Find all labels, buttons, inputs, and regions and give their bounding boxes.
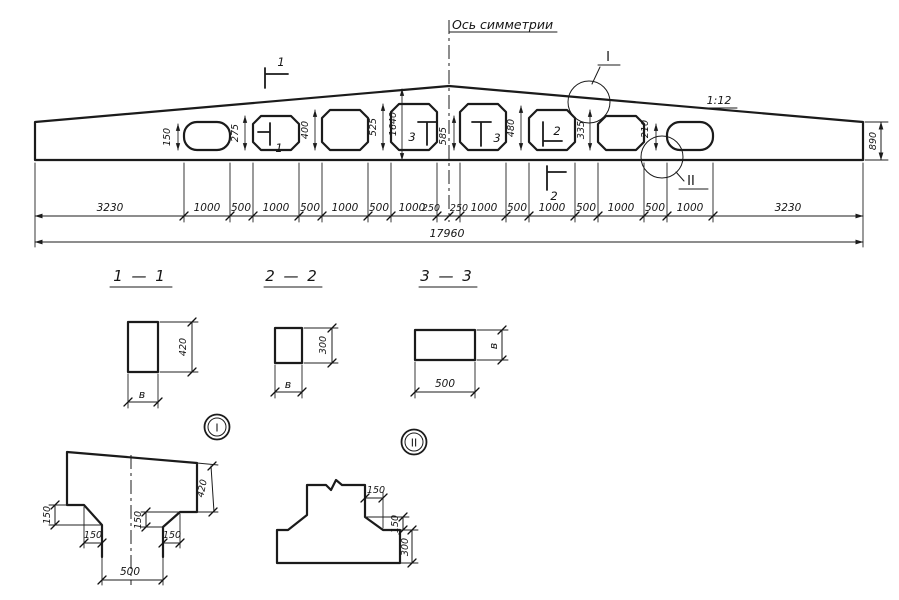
- detail-dim-label: 420: [195, 478, 210, 498]
- chain-dim-label: 500: [576, 202, 596, 214]
- detail-dim-label: 150: [367, 485, 385, 496]
- web-opening-6: [529, 110, 575, 150]
- detail-i-badge: I: [215, 422, 218, 435]
- section-title: 3 — 3: [420, 267, 474, 285]
- total-length-label: 17960: [430, 227, 465, 240]
- section-title: 2 — 2: [265, 267, 319, 285]
- section-1-1: 1 — 1 420 в: [110, 267, 198, 408]
- section-width-label: в: [285, 378, 291, 391]
- detail-ii-badge: II: [411, 437, 418, 450]
- chain-dim-label: 500: [231, 202, 251, 214]
- cut-2-below-label: 2: [550, 189, 557, 203]
- chain-dimension: 3230 1000 500 1000 500 1000 500 1000 250…: [35, 202, 863, 220]
- chain-dim-label: 500: [507, 202, 527, 214]
- end-height-dimension: 890: [865, 122, 888, 160]
- chain-dim-label: 1000: [194, 202, 221, 214]
- section-width-label: 500: [435, 378, 455, 390]
- web-opening-1: [184, 122, 230, 150]
- post-dim-label: 585: [438, 127, 449, 145]
- chain-dim-label: 500: [300, 202, 320, 214]
- detail-i: I 420 150 150 150 150 500: [42, 415, 230, 586]
- chain-dim-label: 1000: [332, 202, 359, 214]
- detail-dim-label: 150: [84, 530, 102, 541]
- chain-dim-label: 1000: [539, 202, 566, 214]
- detail-dim-label: 150: [133, 511, 144, 529]
- chain-dim-label: 3230: [775, 202, 802, 214]
- section-2-2: 2 — 2 300 в: [264, 267, 338, 398]
- chain-dim-label: 250: [422, 203, 440, 214]
- apex-height-label: 1640: [388, 112, 399, 136]
- post-dim-label: 400: [300, 121, 311, 139]
- chain-dim-label: 1000: [677, 202, 704, 214]
- detail-dim-label: 500: [120, 566, 140, 578]
- chain-dim-label: 1000: [608, 202, 635, 214]
- cut-2-inner-label: 2: [553, 124, 560, 138]
- chain-dim-label: 1000: [471, 202, 498, 214]
- detail-dim-label: 150: [42, 506, 53, 524]
- post-dim-label: 480: [506, 119, 517, 137]
- post-dim-label: 150: [162, 128, 173, 146]
- section-title: 1 — 1: [113, 267, 167, 285]
- cut-3-right-label: 3: [493, 131, 500, 145]
- detail-ref-i-label: I: [606, 50, 610, 65]
- section-3-3: 3 — 3 500 в: [411, 267, 508, 398]
- web-opening-7: [598, 116, 644, 150]
- detail-dim-label: 150: [390, 515, 401, 533]
- post-dim-label: 275: [230, 124, 241, 142]
- detail-dim-label: 300: [400, 538, 411, 556]
- section-height-label: в: [487, 343, 500, 349]
- web-opening-8: [667, 122, 713, 150]
- section-3-3-profile: [415, 330, 475, 360]
- cut-1-top-label: 1: [277, 55, 284, 69]
- slope-label: 1:12: [707, 94, 732, 107]
- post-dim-label: 335: [576, 121, 587, 139]
- elevation-view: Ось симметрии 1:12 150 275 400 525: [35, 17, 888, 247]
- detail-reference-i: I: [568, 50, 620, 123]
- cut-3-left-label: 3: [408, 130, 415, 144]
- post-dim-label: 525: [368, 118, 379, 136]
- detail-dim-label: 150: [163, 530, 181, 541]
- section-width-label: в: [139, 388, 145, 401]
- chain-dim-label: 1000: [263, 202, 290, 214]
- axis-of-symmetry-label: Ось симметрии: [452, 17, 553, 32]
- cut-1-inner-label: 1: [275, 141, 282, 155]
- detail-ii: II 150 150 300: [277, 430, 427, 568]
- section-1-1-profile: [128, 322, 158, 372]
- technical-drawing-sheet: Ось симметрии 1:12 150 275 400 525: [0, 0, 899, 600]
- total-dimension: 17960: [35, 227, 863, 242]
- section-height-label: 300: [318, 336, 329, 354]
- detail-ref-ii-label: II: [687, 174, 695, 189]
- web-opening-3: [322, 110, 368, 150]
- end-height-label: 890: [868, 132, 879, 150]
- section-2-2-profile: [275, 328, 302, 363]
- detail-reference-ii: II: [641, 136, 708, 189]
- post-dim-label: 210: [640, 120, 651, 138]
- chain-dim-label: 500: [645, 202, 665, 214]
- chain-dim-label: 3230: [97, 202, 124, 214]
- chain-dim-label: 500: [369, 202, 389, 214]
- section-height-label: 420: [178, 338, 189, 356]
- beam-drawing: Ось симметрии 1:12 150 275 400 525: [0, 0, 899, 600]
- chain-dim-label: 250: [450, 203, 468, 214]
